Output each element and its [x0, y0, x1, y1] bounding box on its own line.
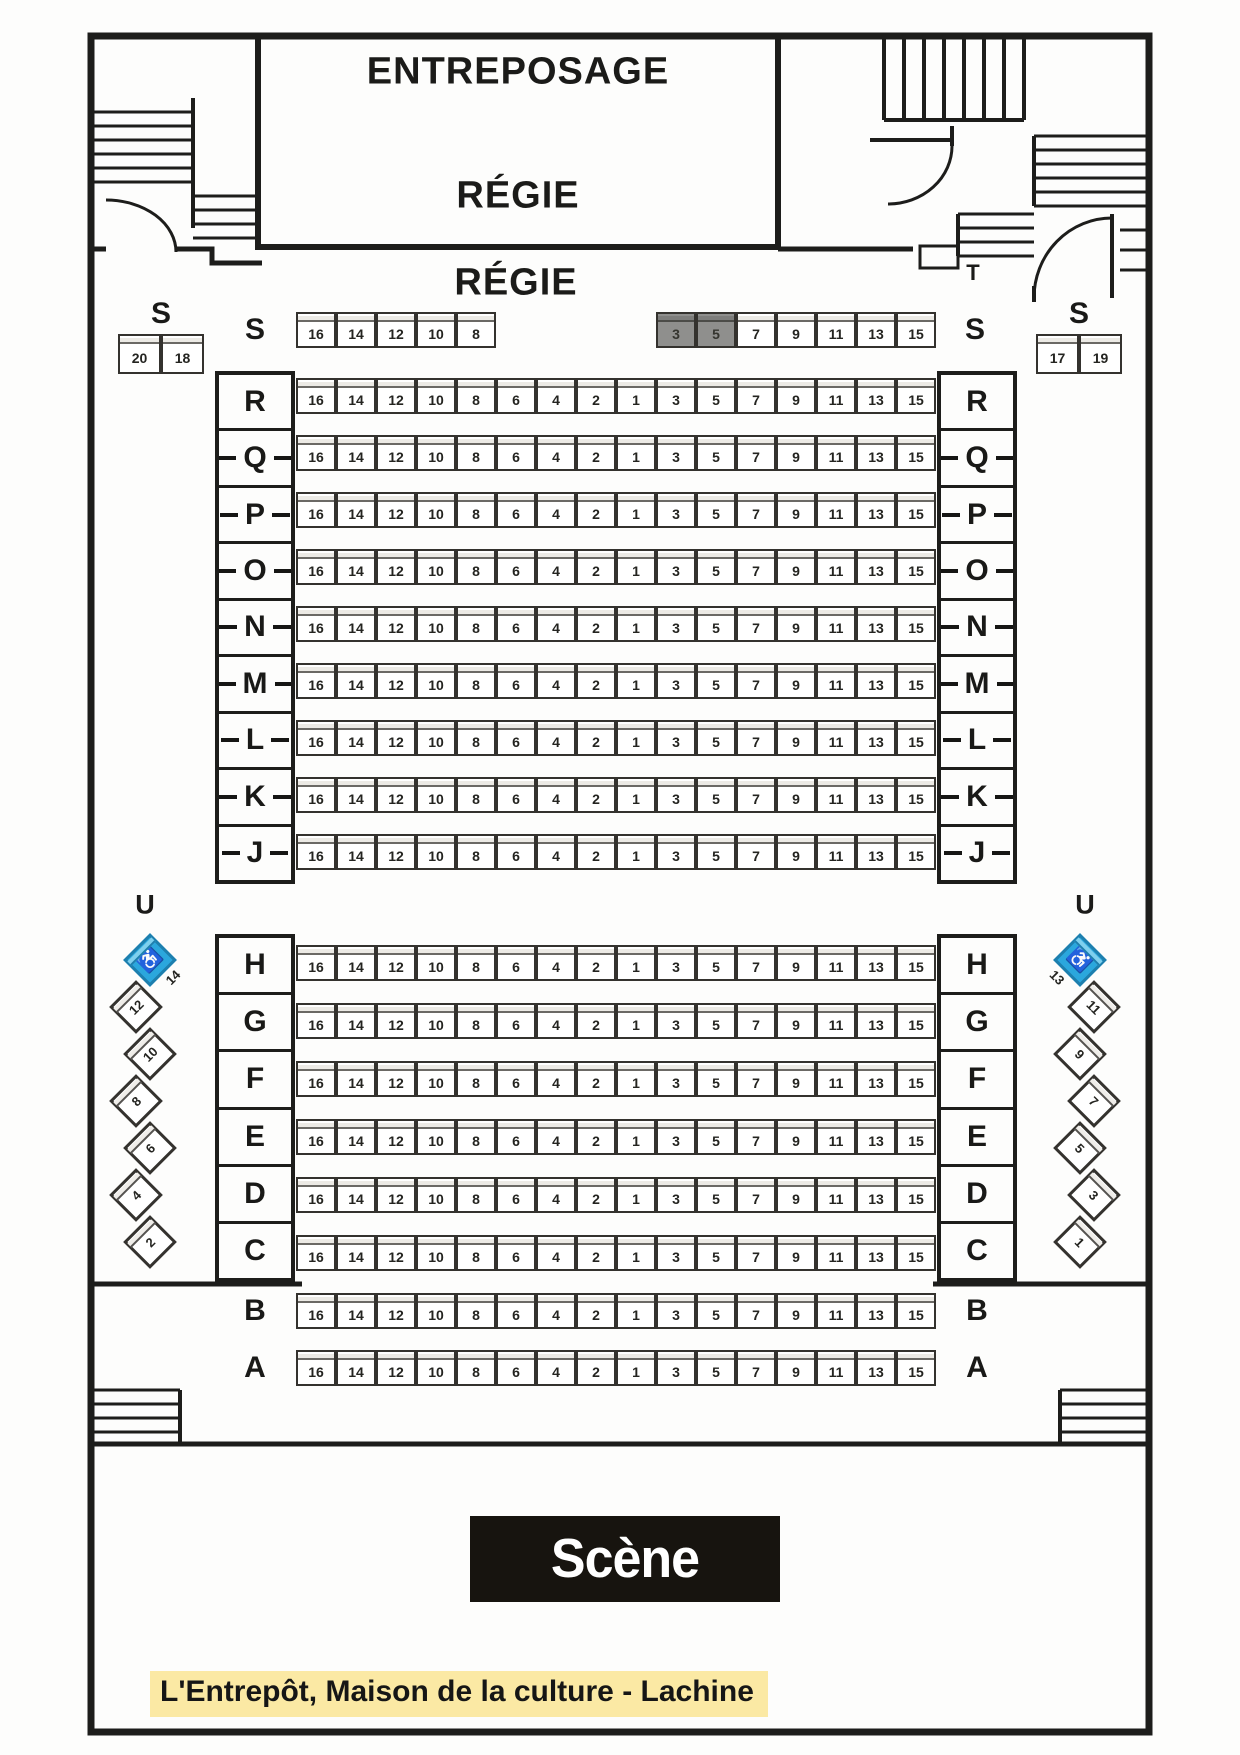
seat-R3: 3	[656, 378, 696, 414]
seat-H5: 5	[696, 945, 736, 981]
row-label-right-B: B	[966, 1294, 988, 1328]
seat-A8: 8	[456, 1350, 496, 1386]
venue-caption: L'Entrepôt, Maison de la culture - Lachi…	[150, 1671, 768, 1717]
seat-N12: 12	[376, 606, 416, 642]
seat-H6: 6	[496, 945, 536, 981]
seat-D2: 2	[576, 1177, 616, 1213]
row-letter: K	[966, 780, 988, 814]
seat-S9: 9	[776, 312, 816, 348]
row-label-left-Q: Q	[219, 431, 291, 487]
row-letter: P	[967, 498, 987, 532]
seat-P7: 7	[736, 492, 776, 528]
seat-P2: 2	[576, 492, 616, 528]
seat-H14: 14	[336, 945, 376, 981]
row-letter: E	[967, 1120, 987, 1154]
seat-Q5: 5	[696, 435, 736, 471]
seat-N4: 4	[536, 606, 576, 642]
seat-J7: 7	[736, 834, 776, 870]
seat-O13: 13	[856, 549, 896, 585]
seat-M7: 7	[736, 663, 776, 699]
row-letter: H	[244, 948, 266, 982]
seat-Q6: 6	[496, 435, 536, 471]
seat-row-S: 3579111315	[656, 312, 936, 348]
seat-S17: 17	[1036, 334, 1079, 374]
seat-R9: 9	[776, 378, 816, 414]
seat-row-B: 16141210864213579111315	[296, 1293, 936, 1329]
row-dash	[941, 682, 958, 686]
seat-Q2: 2	[576, 435, 616, 471]
row-dash	[274, 456, 291, 460]
seat-J4: 4	[536, 834, 576, 870]
row-label-left-M: M	[219, 657, 291, 713]
seat-N6: 6	[496, 606, 536, 642]
seat-B1: 1	[616, 1293, 656, 1329]
seat-C11: 11	[816, 1235, 856, 1271]
seat-L6: 6	[496, 720, 536, 756]
seat-L3: 3	[656, 720, 696, 756]
seat-G11: 11	[816, 1003, 856, 1039]
seat-S8: 8	[456, 312, 496, 348]
seat-M9: 9	[776, 663, 816, 699]
seat-Q11: 11	[816, 435, 856, 471]
row-label-left-A: A	[244, 1351, 266, 1385]
row-dash	[274, 569, 291, 573]
seat-J8: 8	[456, 834, 496, 870]
seat-H10: 10	[416, 945, 456, 981]
seat-H13: 13	[856, 945, 896, 981]
row-label-column-right: HGFEDC	[937, 934, 1017, 1282]
seat-A15: 15	[896, 1350, 936, 1386]
seat-F2: 2	[576, 1061, 616, 1097]
seat-R11: 11	[816, 378, 856, 414]
seat-C3: 3	[656, 1235, 696, 1271]
seat-D12: 12	[376, 1177, 416, 1213]
row-dash	[222, 851, 240, 855]
side-box-left-label: S	[151, 297, 171, 331]
seat-O14: 14	[336, 549, 376, 585]
seat-H16: 16	[296, 945, 336, 981]
seat-M16: 16	[296, 663, 336, 699]
row-letter: L	[246, 723, 264, 757]
seat-C12: 12	[376, 1235, 416, 1271]
seat-B6: 6	[496, 1293, 536, 1329]
seat-J12: 12	[376, 834, 416, 870]
row-letter: N	[966, 610, 988, 644]
seat-Q1: 1	[616, 435, 656, 471]
seat-S11: 11	[816, 312, 856, 348]
seat-O3: 3	[656, 549, 696, 585]
seat-G8: 8	[456, 1003, 496, 1039]
seat-R2: 2	[576, 378, 616, 414]
row-letter: O	[965, 554, 988, 588]
seat-E4: 4	[536, 1119, 576, 1155]
seat-S15: 15	[896, 312, 936, 348]
seat-K4: 4	[536, 777, 576, 813]
seat-N7: 7	[736, 606, 776, 642]
seat-O9: 9	[776, 549, 816, 585]
row-label-right-N: N	[941, 601, 1013, 657]
row-label-left-K: K	[219, 770, 291, 826]
seat-C16: 16	[296, 1235, 336, 1271]
seat-C10: 10	[416, 1235, 456, 1271]
seat-L15: 15	[896, 720, 936, 756]
seat-row-R: 16141210864213579111315	[296, 378, 936, 414]
row-dash	[220, 513, 238, 517]
row-label-left-L: L	[219, 714, 291, 770]
row-label-left-R: R	[219, 375, 291, 431]
seat-J2: 2	[576, 834, 616, 870]
row-dash	[995, 625, 1013, 629]
row-letter: C	[244, 1234, 266, 1268]
seat-H11: 11	[816, 945, 856, 981]
seat-row-D: 16141210864213579111315	[296, 1177, 936, 1213]
row-label-right-C: C	[941, 1224, 1013, 1278]
seat-G14: 14	[336, 1003, 376, 1039]
row-letter: F	[246, 1062, 264, 1096]
seat-J3: 3	[656, 834, 696, 870]
row-letter: P	[245, 498, 265, 532]
seat-G13: 13	[856, 1003, 896, 1039]
row-dash	[996, 456, 1013, 460]
seat-N5: 5	[696, 606, 736, 642]
seat-S13: 13	[856, 312, 896, 348]
row-label-left-O: O	[219, 544, 291, 600]
seat-S19: 19	[1079, 334, 1122, 374]
seat-row-E: 16141210864213579111315	[296, 1119, 936, 1155]
seat-D13: 13	[856, 1177, 896, 1213]
row-letter: N	[244, 610, 266, 644]
seat-C8: 8	[456, 1235, 496, 1271]
row-label-right-K: K	[941, 770, 1013, 826]
seat-row-K: 16141210864213579111315	[296, 777, 936, 813]
seat-R1: 1	[616, 378, 656, 414]
seat-H8: 8	[456, 945, 496, 981]
seat-O15: 15	[896, 549, 936, 585]
seat-S12: 12	[376, 312, 416, 348]
seat-Q16: 16	[296, 435, 336, 471]
seat-F7: 7	[736, 1061, 776, 1097]
corridor-u-right-label: U	[1075, 890, 1095, 921]
seat-P4: 4	[536, 492, 576, 528]
seat-D16: 16	[296, 1177, 336, 1213]
seat-G16: 16	[296, 1003, 336, 1039]
seat-H15: 15	[896, 945, 936, 981]
seat-D15: 15	[896, 1177, 936, 1213]
row-dash	[221, 738, 239, 742]
seat-Q8: 8	[456, 435, 496, 471]
seat-P6: 6	[496, 492, 536, 528]
seat-K3: 3	[656, 777, 696, 813]
seat-D4: 4	[536, 1177, 576, 1213]
row-label-right-R: R	[941, 375, 1013, 431]
row-dash	[271, 738, 289, 742]
seat-B4: 4	[536, 1293, 576, 1329]
seat-M8: 8	[456, 663, 496, 699]
seat-C1: 1	[616, 1235, 656, 1271]
seat-S5: 5	[696, 312, 736, 348]
seat-J9: 9	[776, 834, 816, 870]
row-s-right-label: S	[965, 313, 985, 347]
row-label-column-right: RQPONMLKJ	[937, 371, 1017, 884]
seat-K9: 9	[776, 777, 816, 813]
seat-Q14: 14	[336, 435, 376, 471]
seat-P14: 14	[336, 492, 376, 528]
seat-row-O: 16141210864213579111315	[296, 549, 936, 585]
seat-B2: 2	[576, 1293, 616, 1329]
seat-E13: 13	[856, 1119, 896, 1155]
stage-label: Scène	[551, 1528, 699, 1591]
stair-landing	[920, 246, 958, 268]
seat-N1: 1	[616, 606, 656, 642]
seat-Q15: 15	[896, 435, 936, 471]
row-dash	[941, 456, 958, 460]
seat-S16: 16	[296, 312, 336, 348]
seat-A14: 14	[336, 1350, 376, 1386]
seat-M3: 3	[656, 663, 696, 699]
seat-Q3: 3	[656, 435, 696, 471]
seat-N15: 15	[896, 606, 936, 642]
seat-F9: 9	[776, 1061, 816, 1097]
seat-A1: 1	[616, 1350, 656, 1386]
seat-M4: 4	[536, 663, 576, 699]
seat-D8: 8	[456, 1177, 496, 1213]
seat-A3: 3	[656, 1350, 696, 1386]
seat-B12: 12	[376, 1293, 416, 1329]
row-letter: F	[968, 1062, 986, 1096]
seat-row-G: 16141210864213579111315	[296, 1003, 936, 1039]
seat-O10: 10	[416, 549, 456, 585]
regie-floor-label: RÉGIE	[454, 262, 577, 305]
seat-row-L: 16141210864213579111315	[296, 720, 936, 756]
row-letter: D	[244, 1177, 266, 1211]
seat-P11: 11	[816, 492, 856, 528]
seat-row-J: 16141210864213579111315	[296, 834, 936, 870]
seat-N16: 16	[296, 606, 336, 642]
seat-L9: 9	[776, 720, 816, 756]
seat-R16: 16	[296, 378, 336, 414]
row-dash	[273, 625, 291, 629]
seat-P5: 5	[696, 492, 736, 528]
seat-E10: 10	[416, 1119, 456, 1155]
side-box-right-label: S	[1069, 297, 1089, 331]
seat-E2: 2	[576, 1119, 616, 1155]
seat-F8: 8	[456, 1061, 496, 1097]
floorplan-walls	[0, 0, 1240, 1755]
row-dash	[219, 795, 237, 799]
row-label-left-P: P	[219, 488, 291, 544]
row-dash	[219, 456, 236, 460]
seat-F4: 4	[536, 1061, 576, 1097]
seat-R8: 8	[456, 378, 496, 414]
seat-R10: 10	[416, 378, 456, 414]
entreposage-label: ENTREPOSAGE	[367, 51, 669, 94]
seat-K8: 8	[456, 777, 496, 813]
row-letter: R	[244, 385, 266, 419]
seat-A13: 13	[856, 1350, 896, 1386]
seat-L11: 11	[816, 720, 856, 756]
row-letter: R	[966, 385, 988, 419]
row-letter: J	[969, 836, 986, 870]
seat-K13: 13	[856, 777, 896, 813]
seat-J13: 13	[856, 834, 896, 870]
seat-G3: 3	[656, 1003, 696, 1039]
seat-C6: 6	[496, 1235, 536, 1271]
seat-J15: 15	[896, 834, 936, 870]
seat-row-N: 16141210864213579111315	[296, 606, 936, 642]
row-dash	[219, 625, 237, 629]
seat-F1: 1	[616, 1061, 656, 1097]
seat-O12: 12	[376, 549, 416, 585]
row-dash	[270, 851, 288, 855]
seat-D7: 7	[736, 1177, 776, 1213]
regie-room-label: RÉGIE	[456, 175, 579, 218]
seat-M2: 2	[576, 663, 616, 699]
row-dash	[997, 682, 1014, 686]
row-label-right-G: G	[941, 995, 1013, 1052]
row-dash	[943, 738, 961, 742]
seat-F10: 10	[416, 1061, 456, 1097]
seat-F15: 15	[896, 1061, 936, 1097]
row-label-right-O: O	[941, 544, 1013, 600]
seat-N2: 2	[576, 606, 616, 642]
seat-D11: 11	[816, 1177, 856, 1213]
seat-O5: 5	[696, 549, 736, 585]
seat-P10: 10	[416, 492, 456, 528]
side-box-right: 1719	[1036, 334, 1122, 374]
seat-D9: 9	[776, 1177, 816, 1213]
seat-M13: 13	[856, 663, 896, 699]
seat-G7: 7	[736, 1003, 776, 1039]
seat-O6: 6	[496, 549, 536, 585]
row-dash	[993, 738, 1011, 742]
seat-Q9: 9	[776, 435, 816, 471]
seat-E12: 12	[376, 1119, 416, 1155]
seat-row-C: 16141210864213579111315	[296, 1235, 936, 1271]
seat-D14: 14	[336, 1177, 376, 1213]
seat-A5: 5	[696, 1350, 736, 1386]
seat-E16: 16	[296, 1119, 336, 1155]
seat-L8: 8	[456, 720, 496, 756]
row-dash	[941, 569, 958, 573]
seat-L7: 7	[736, 720, 776, 756]
row-letter: Q	[965, 441, 988, 475]
seat-C2: 2	[576, 1235, 616, 1271]
seat-A11: 11	[816, 1350, 856, 1386]
seat-B7: 7	[736, 1293, 776, 1329]
seat-C14: 14	[336, 1235, 376, 1271]
seat-O1: 1	[616, 549, 656, 585]
seat-F16: 16	[296, 1061, 336, 1097]
seat-C5: 5	[696, 1235, 736, 1271]
seat-P9: 9	[776, 492, 816, 528]
row-label-right-E: E	[941, 1110, 1013, 1167]
seat-J10: 10	[416, 834, 456, 870]
corridor-t-label: T	[966, 260, 979, 286]
seat-M6: 6	[496, 663, 536, 699]
seating-plan: ENTREPOSAGE RÉGIE RÉGIE T U U SS16141210…	[0, 0, 1240, 1755]
row-letter: J	[247, 836, 264, 870]
seat-L10: 10	[416, 720, 456, 756]
seat-C15: 15	[896, 1235, 936, 1271]
seat-K2: 2	[576, 777, 616, 813]
seat-Q4: 4	[536, 435, 576, 471]
seat-B11: 11	[816, 1293, 856, 1329]
seat-M5: 5	[696, 663, 736, 699]
seat-G10: 10	[416, 1003, 456, 1039]
seat-G12: 12	[376, 1003, 416, 1039]
seat-P1: 1	[616, 492, 656, 528]
seat-M11: 11	[816, 663, 856, 699]
seat-G5: 5	[696, 1003, 736, 1039]
seat-D10: 10	[416, 1177, 456, 1213]
row-label-column-left: HGFEDC	[215, 934, 295, 1282]
seat-A9: 9	[776, 1350, 816, 1386]
seat-G15: 15	[896, 1003, 936, 1039]
row-label-left-H: H	[219, 938, 291, 995]
row-label-right-L: L	[941, 714, 1013, 770]
seat-E5: 5	[696, 1119, 736, 1155]
row-letter: G	[965, 1005, 988, 1039]
seat-D1: 1	[616, 1177, 656, 1213]
row-dash	[272, 513, 290, 517]
seat-L5: 5	[696, 720, 736, 756]
seat-S3: 3	[656, 312, 696, 348]
row-dash	[219, 682, 236, 686]
row-label-right-P: P	[941, 488, 1013, 544]
row-dash	[275, 682, 292, 686]
seat-A12: 12	[376, 1350, 416, 1386]
seat-G1: 1	[616, 1003, 656, 1039]
seat-C9: 9	[776, 1235, 816, 1271]
seat-S14: 14	[336, 312, 376, 348]
row-label-right-A: A	[966, 1351, 988, 1385]
seat-K11: 11	[816, 777, 856, 813]
seat-K14: 14	[336, 777, 376, 813]
row-dash	[941, 625, 959, 629]
seat-O4: 4	[536, 549, 576, 585]
seat-A16: 16	[296, 1350, 336, 1386]
seat-B10: 10	[416, 1293, 456, 1329]
seat-K1: 1	[616, 777, 656, 813]
row-letter: H	[966, 948, 988, 982]
seat-E9: 9	[776, 1119, 816, 1155]
seat-E8: 8	[456, 1119, 496, 1155]
seat-G9: 9	[776, 1003, 816, 1039]
row-dash	[995, 795, 1013, 799]
seat-R14: 14	[336, 378, 376, 414]
row-letter: O	[243, 554, 266, 588]
seat-S7: 7	[736, 312, 776, 348]
seat-K15: 15	[896, 777, 936, 813]
seat-Q10: 10	[416, 435, 456, 471]
wheelchair-icon: ♿	[1063, 943, 1097, 977]
seat-F12: 12	[376, 1061, 416, 1097]
seat-M1: 1	[616, 663, 656, 699]
row-letter: G	[243, 1005, 266, 1039]
seat-R7: 7	[736, 378, 776, 414]
seat-R6: 6	[496, 378, 536, 414]
seat-B15: 15	[896, 1293, 936, 1329]
seat-D6: 6	[496, 1177, 536, 1213]
seat-row-A: 16141210864213579111315	[296, 1350, 936, 1386]
row-label-left-J: J	[219, 827, 291, 880]
seat-B5: 5	[696, 1293, 736, 1329]
row-letter: M	[243, 667, 268, 701]
seat-O7: 7	[736, 549, 776, 585]
seat-K16: 16	[296, 777, 336, 813]
seat-H1: 1	[616, 945, 656, 981]
row-dash	[942, 513, 960, 517]
